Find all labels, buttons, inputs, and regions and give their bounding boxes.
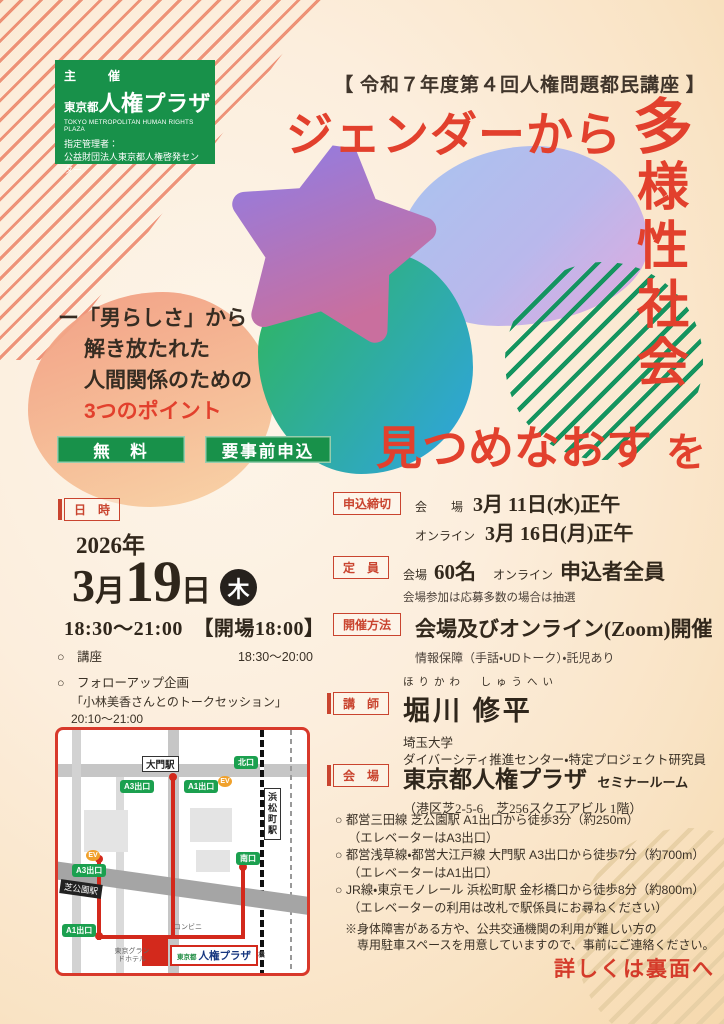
map-building	[84, 810, 128, 852]
access-item1: ○ 都営三田線 芝公園駅 A1出口から徒歩3分（約250m）	[335, 812, 719, 830]
parking-note: ※身体障害がある方や、公共交通機関の利用が難しい方の 専用駐車スペースを用意して…	[345, 921, 719, 953]
map-a3-exit-top: A3出口	[120, 780, 154, 793]
map-a3-exit-mid: A3出口	[72, 864, 106, 877]
map-south-exit: 南口	[236, 852, 260, 865]
organizer-box: 主 催 東京都人権プラザ TOKYO METROPOLITAN HUMAN RI…	[55, 60, 215, 164]
organizer-manager-label: 指定管理者：	[64, 137, 206, 150]
organizer-name: 人権プラザ	[99, 91, 212, 116]
lead-line2: 解き放たれた	[84, 334, 252, 365]
organizer-name-prefix: 東京都	[64, 102, 99, 114]
event-time: 18:30～21:00 【開場18:00】	[64, 612, 324, 641]
organizer-role: 主 催	[64, 67, 206, 84]
map-ev-icon: EV	[218, 776, 232, 787]
map-building	[190, 808, 232, 842]
schedule-item1-time: 18:30～20:00	[238, 646, 313, 665]
see-back-note: 詳しくは裏面へ	[554, 953, 715, 983]
apply-venue-key: 会 場	[415, 494, 463, 521]
format-main: 会場及びオンライン(Zoom)開催	[415, 613, 713, 643]
map-route	[171, 776, 175, 938]
map-building	[196, 850, 230, 872]
format-label: 開催方法	[333, 613, 401, 636]
event-poster: 主 催 東京都人権プラザ TOKYO METROPOLITAN HUMAN RI…	[0, 0, 724, 1024]
datetime-label: 日 時	[64, 498, 120, 521]
venue-room: セミナールーム	[597, 775, 688, 790]
capacity-online-value: 申込者全員	[560, 556, 665, 586]
map-hotel-label: 東京グランドホテル	[112, 948, 152, 965]
venue-name: 東京都人権プラザ	[403, 767, 587, 792]
access-item1-sub: （エレベーターはA3出口）	[335, 830, 719, 848]
access-list: ○ 都営三田線 芝公園駅 A1出口から徒歩3分（約250m） （エレベーターはA…	[335, 812, 719, 917]
capacity-section: 定 員 会場 60名 オンライン 申込者全員 会場参加は応募多数の場合は抽選	[333, 556, 665, 605]
lead-line3: 人間関係のための	[84, 365, 252, 396]
lead-copy: ー「男らしさ」から 解き放たれた 人間関係のための 3つのポイント	[58, 303, 252, 427]
capacity-note: 会場参加は応募多数の場合は抽選	[403, 589, 665, 605]
map-monorail	[290, 730, 292, 973]
organizer-name-en: TOKYO METROPOLITAN HUMAN RIGHTS PLAZA	[64, 119, 206, 133]
schedule-item2: ○ フォローアップ企画	[57, 672, 313, 691]
venue-section: 会 場 東京都人権プラザ セミナールーム （港区芝2-5-6 芝256スクエアビ…	[333, 760, 688, 817]
event-month: 3	[72, 559, 95, 612]
free-badge: 無 料	[57, 436, 185, 463]
map-a1-exit-top: A1出口	[184, 780, 218, 793]
lecturer-affiliation1: 埼玉大学	[403, 735, 706, 752]
map-route	[241, 866, 245, 938]
event-day: 19	[125, 548, 181, 615]
access-item2-sub: （エレベーターはA1出口）	[335, 865, 719, 883]
map-ev-icon: EV	[86, 850, 100, 861]
venue-label: 会 場	[333, 764, 389, 787]
lecturer-name: 堀川 修平	[403, 689, 706, 728]
apply-online-value: 3月 16日(月)正午	[485, 521, 633, 548]
map-a1-exit-bottom: A1出口	[62, 924, 96, 937]
map-daimon-station: 大門駅	[142, 756, 179, 772]
map-destination-label: 東京都 人権プラザ	[170, 945, 258, 966]
map-route-dot	[95, 932, 103, 940]
details-column: 申込締切 会 場 3月 11日(水)正午 オンライン 3月 16日(月)正午 定…	[333, 0, 719, 1024]
event-date: 3 月 19 日 木	[72, 548, 257, 615]
apply-online-key: オンライン	[415, 523, 475, 550]
access-item3: ○ JR線・東京モノレール 浜松町駅 金杉橋口から徒歩8分（約800m）	[335, 882, 719, 900]
lecturer-furigana: ほりかわ しゅうへい	[403, 674, 706, 689]
organizer-manager: 公益財団法人東京都人権啓発センター	[64, 150, 206, 176]
lead-highlight: 3つのポイント	[84, 396, 252, 427]
map-conbini-label: コンビニ	[174, 924, 202, 932]
map-route-dot	[169, 773, 177, 781]
access-map: 大門駅 北口 A3出口 A1出口 EV 浜松町駅 南口 EV A3出口 芝公園駅…	[55, 727, 310, 976]
map-road	[58, 764, 307, 777]
schedule-item2-detail: 「小林美香さんとのトークセッション」20:10～21:00	[71, 693, 313, 727]
reservation-badge: 要事前申込	[205, 436, 331, 463]
access-item3-sub: （エレベーターの利用は改札で駅係員にお尋ねください）	[335, 900, 719, 918]
apply-deadline-section: 申込締切 会 場 3月 11日(水)正午 オンライン 3月 16日(月)正午	[333, 492, 633, 550]
apply-venue-value: 3月 11日(水)正午	[473, 492, 620, 519]
event-weekday-badge: 木	[220, 569, 257, 606]
schedule-item1: ○ 講座	[57, 646, 102, 665]
map-north-exit: 北口	[234, 756, 258, 769]
map-railway	[260, 730, 264, 973]
apply-deadline-label: 申込締切	[333, 492, 401, 515]
lecturer-label: 講 師	[333, 692, 389, 715]
capacity-label: 定 員	[333, 556, 389, 579]
capacity-venue-value: 60名	[434, 556, 476, 586]
map-route	[97, 935, 245, 939]
format-section: 開催方法 会場及びオンライン(Zoom)開催 情報保障（手話・UDトーク）・託児…	[333, 613, 713, 666]
lecturer-section: 講 師 ほりかわ しゅうへい 堀川 修平 埼玉大学 ダイバーシティ推進センター・…	[333, 674, 706, 769]
format-note: 情報保障（手話・UDトーク）・託児あり	[415, 649, 713, 666]
lead-line1: ー「男らしさ」から	[58, 303, 252, 334]
access-item2: ○ 都営浅草線・都営大江戸線 大門駅 A3出口から徒歩7分（約700m）	[335, 847, 719, 865]
map-hamamatsucho-station: 浜松町駅	[264, 788, 281, 840]
